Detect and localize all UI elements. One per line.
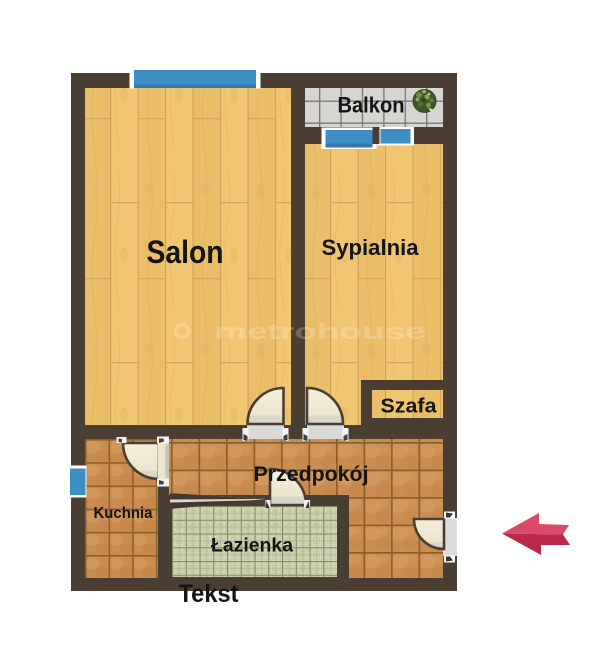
svg-text:Kuchnia: Kuchnia	[94, 505, 153, 522]
svg-text:Tekst: Tekst	[179, 580, 240, 608]
svg-text:Balkon: Balkon	[338, 93, 405, 118]
svg-text:Przedpokój: Przedpokój	[254, 463, 369, 486]
svg-text:Łazienka: Łazienka	[211, 535, 293, 557]
svg-text:Szafa: Szafa	[381, 395, 438, 418]
svg-text:Salon: Salon	[147, 234, 224, 270]
svg-text:Sypialnia: Sypialnia	[322, 235, 419, 260]
svg-text:metrohouse: metrohouse	[214, 319, 426, 344]
